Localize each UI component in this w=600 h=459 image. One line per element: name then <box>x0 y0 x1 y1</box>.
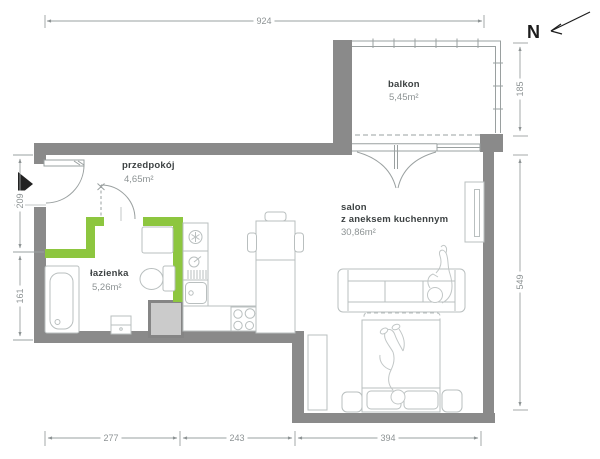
kitchen-counter-column-icon <box>183 223 208 306</box>
room-label-living-subtitle: z aneksem kuchennym <box>341 214 448 225</box>
dim-left-upper: 209 <box>15 190 25 211</box>
balcony-door-icon <box>352 144 437 188</box>
room-area-bath: 5,26m² <box>92 282 122 293</box>
bathtub-icon <box>45 266 79 333</box>
toilet-icon <box>140 266 175 291</box>
dim-top-width: 924 <box>253 16 274 26</box>
balcony-railing <box>352 39 503 136</box>
kitchen-island-icon <box>256 221 295 333</box>
dim-bottom-middle: 243 <box>226 433 247 443</box>
room-label-bath: łazienka <box>90 268 129 279</box>
room-area-balcony: 5,45m² <box>389 92 419 103</box>
washer-icon <box>142 227 173 253</box>
washbasin-cabinet-icon <box>111 316 131 334</box>
cooktop-icon <box>231 307 256 331</box>
room-label-living: salon <box>341 202 367 213</box>
floor-plan: N balkon 5,45m² przedpokój 4,65m² łazien… <box>0 0 600 459</box>
room-label-hall: przedpokój <box>122 160 175 171</box>
shaft <box>150 302 183 337</box>
dim-bottom-right: 394 <box>377 433 398 443</box>
bathroom-door-icon <box>98 184 136 222</box>
room-area-living: 30,86m² <box>341 227 376 238</box>
entrance-door-icon <box>44 160 84 203</box>
north-label: N <box>527 22 540 43</box>
room-label-balcony: balkon <box>388 79 420 90</box>
dim-balcony-height: 185 <box>515 78 525 99</box>
window-icon <box>437 144 480 151</box>
wardrobe-icon <box>308 335 327 410</box>
doors-windows <box>44 144 480 221</box>
dim-right-height: 549 <box>515 271 525 292</box>
tv-cabinet-icon <box>465 182 484 242</box>
room-area-hall: 4,65m² <box>124 174 154 185</box>
kitchen-fixtures <box>183 212 304 333</box>
dim-left-lower: 161 <box>15 285 25 306</box>
north-arrow-icon <box>551 12 590 34</box>
dim-bottom-left: 277 <box>100 433 121 443</box>
sofa-icon <box>338 269 465 312</box>
plan-drawing <box>0 0 600 459</box>
